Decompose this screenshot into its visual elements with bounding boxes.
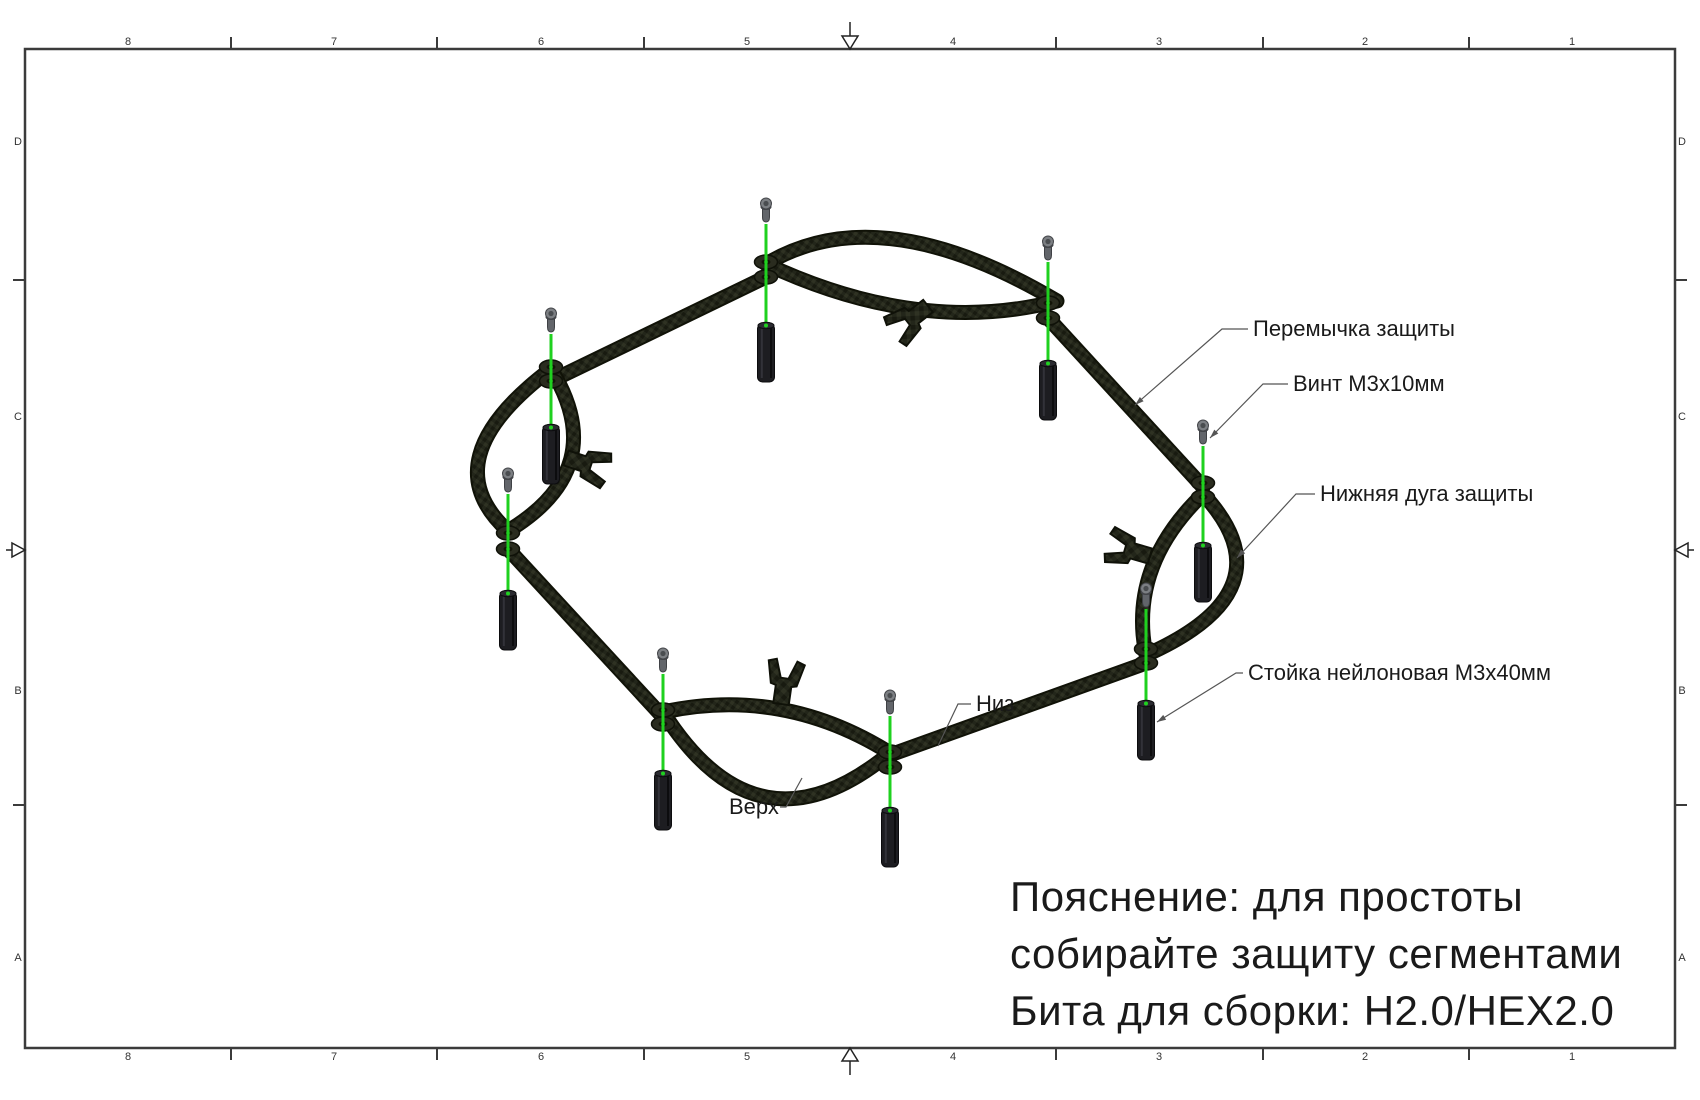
zone-number: 5 <box>744 1051 750 1063</box>
screw-icon <box>1141 583 1152 607</box>
note-line-2: собирайте защиту сегментами <box>1010 930 1622 977</box>
zone-number: 6 <box>538 36 544 48</box>
zone-letter: A <box>1678 952 1686 964</box>
standoff <box>1040 360 1057 420</box>
standoff <box>882 807 899 867</box>
standoff <box>543 424 560 484</box>
zone-number: 2 <box>1362 1051 1368 1063</box>
note-line-1: Пояснение: для простоты <box>1010 873 1523 920</box>
zone-number: 7 <box>331 36 337 48</box>
note-line-3: Бита для сборки: H2.0/HEX2.0 <box>1010 987 1614 1034</box>
callout-vint: Винт M3x10мм <box>1293 371 1445 396</box>
screw-icon <box>658 648 669 672</box>
assembly-drawing: 8 7 6 5 4 3 2 1 8 7 6 5 4 3 2 1 D C B A … <box>0 0 1700 1100</box>
zone-number: 5 <box>744 36 750 48</box>
zone-number: 7 <box>331 1051 337 1063</box>
jumper-bar-nw <box>551 277 766 381</box>
callout-peremychka: Перемычка защиты <box>1253 316 1455 341</box>
leader-duga <box>1237 494 1315 558</box>
zone-number: 2 <box>1362 36 1368 48</box>
zone-letter: D <box>14 136 22 148</box>
jumper-bar-sw <box>508 549 663 717</box>
zone-letter: C <box>14 411 22 423</box>
jumper-bar-se <box>890 663 1146 755</box>
drawing-sheet: 8 7 6 5 4 3 2 1 8 7 6 5 4 3 2 1 D C B A … <box>0 0 1700 1100</box>
centering-arrow-right <box>1675 543 1694 557</box>
guard-arc-top <box>766 237 1057 312</box>
leader-peremychka <box>1135 329 1248 405</box>
jumper-bar-ne <box>1048 318 1203 487</box>
callout-verh: Верх <box>729 794 779 819</box>
zone-number: 4 <box>950 1051 956 1063</box>
screw-icon <box>761 198 772 222</box>
note-block: Пояснение: для простоты собирайте защиту… <box>1010 873 1622 1034</box>
centering-arrow-left <box>6 543 25 557</box>
zone-number: 4 <box>950 36 956 48</box>
zone-number: 1 <box>1569 1051 1575 1063</box>
zone-number: 8 <box>125 1051 131 1063</box>
zone-number: 1 <box>1569 36 1575 48</box>
standoff <box>655 770 672 830</box>
zone-number: 3 <box>1156 1051 1162 1063</box>
mount-forks <box>560 292 1155 707</box>
zone-number: 6 <box>538 1051 544 1063</box>
joints <box>497 255 1215 774</box>
callout-duga: Нижняя дуга защиты <box>1320 481 1533 506</box>
screw-icon <box>503 468 514 492</box>
zone-letter: A <box>14 952 22 964</box>
standoff <box>1138 700 1155 760</box>
zone-letter: B <box>1678 685 1685 697</box>
mount-fork-bottom <box>763 658 805 707</box>
callout-stoyka: Стойка нейлоновая M3x40мм <box>1248 660 1551 685</box>
screw-icon <box>1043 236 1054 260</box>
leader-stoyka <box>1157 673 1243 722</box>
guard-arc-right <box>1143 494 1237 655</box>
centering-arrow-bottom <box>842 1048 858 1075</box>
screw-icon <box>1198 420 1209 444</box>
prop-guard-assembly <box>477 198 1236 867</box>
screw-icon <box>885 690 896 714</box>
zone-letter: D <box>1678 136 1686 148</box>
guard-arc-bottom <box>663 705 890 799</box>
zone-letter: B <box>14 685 21 697</box>
guard-arcs <box>477 237 1236 799</box>
standoff <box>758 322 775 382</box>
leader-vint <box>1210 384 1288 438</box>
zone-letter: C <box>1678 411 1686 423</box>
centering-arrow-top <box>842 22 858 49</box>
standoff <box>500 590 517 650</box>
callout-niz: Низ <box>976 691 1014 716</box>
jumper-bars <box>508 277 1203 755</box>
zone-number: 3 <box>1156 36 1162 48</box>
screw-icon <box>546 308 557 332</box>
alignment-lines <box>508 224 1203 811</box>
zone-number: 8 <box>125 36 131 48</box>
standoff <box>1195 542 1212 602</box>
